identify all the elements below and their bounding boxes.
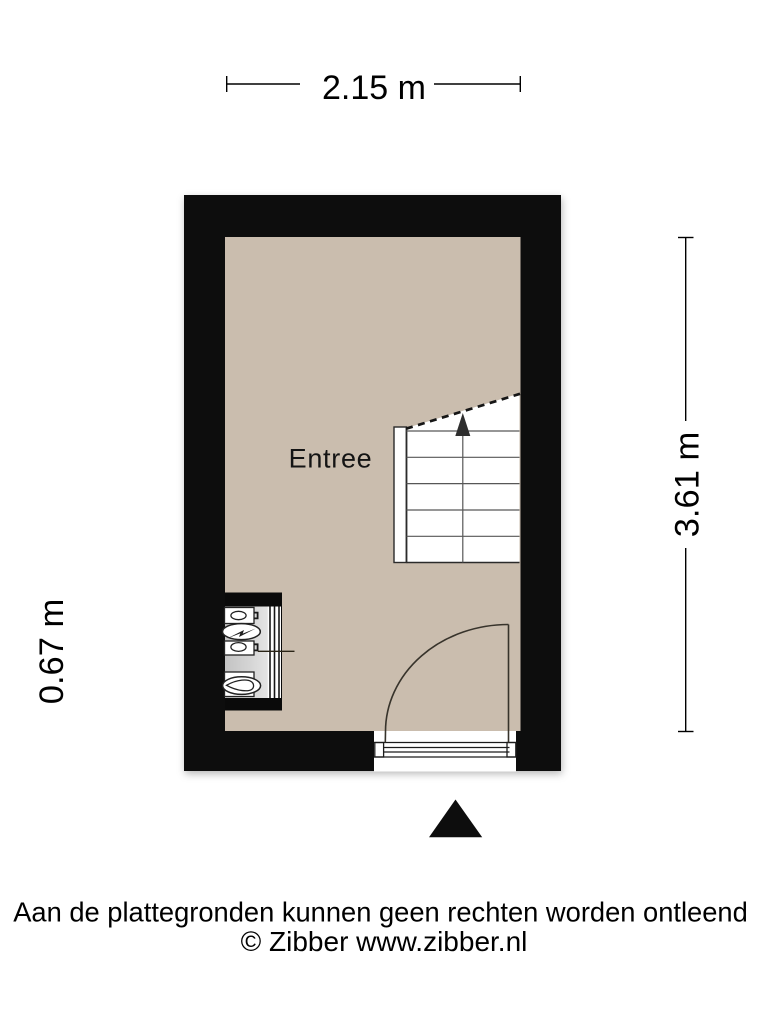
svg-text:Aan de plattegronden kunnen ge: Aan de plattegronden kunnen geen rechten… [13, 897, 748, 928]
svg-text:Entree: Entree [289, 444, 373, 474]
svg-text:© Zibber www.zibber.nl: © Zibber www.zibber.nl [241, 926, 528, 957]
svg-text:0.67 m: 0.67 m [33, 599, 71, 704]
svg-text:3.61 m: 3.61 m [669, 432, 707, 537]
svg-text:2.15 m: 2.15 m [322, 69, 426, 107]
